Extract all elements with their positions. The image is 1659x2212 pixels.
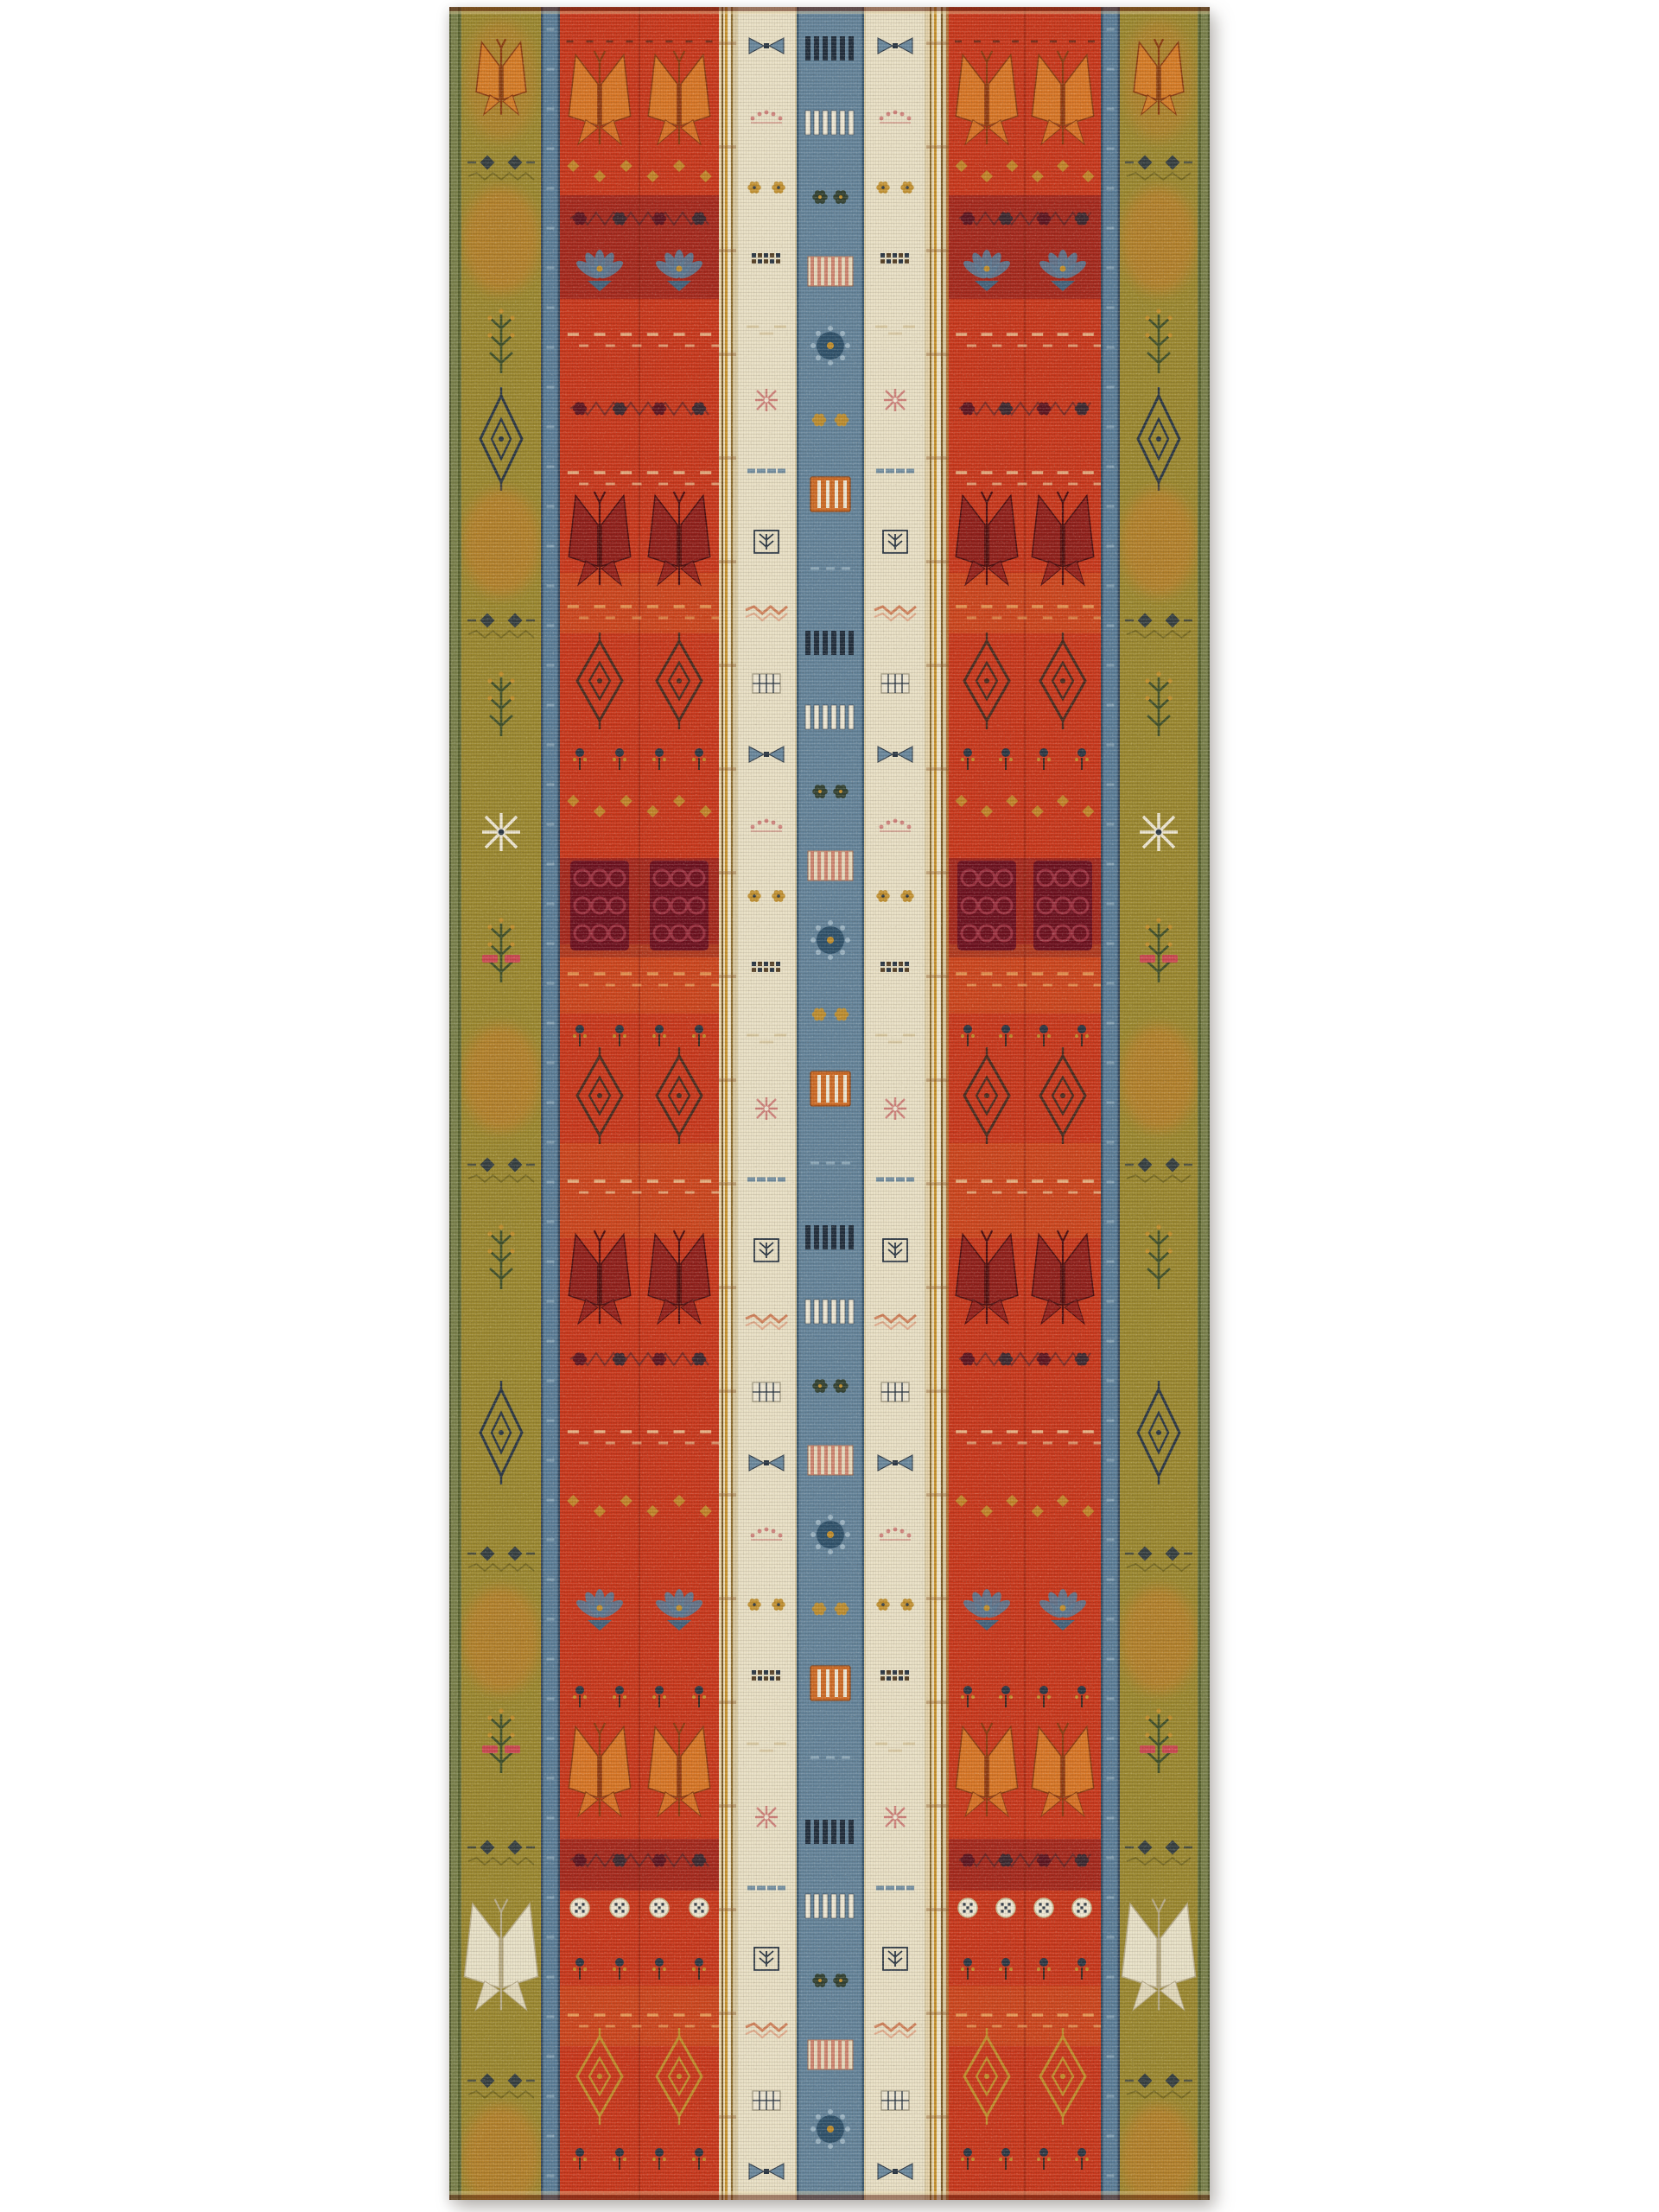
product-photo-stage	[0, 0, 1659, 2212]
rug-canvas	[449, 7, 1210, 2200]
rug-runner-photo	[449, 7, 1210, 2200]
